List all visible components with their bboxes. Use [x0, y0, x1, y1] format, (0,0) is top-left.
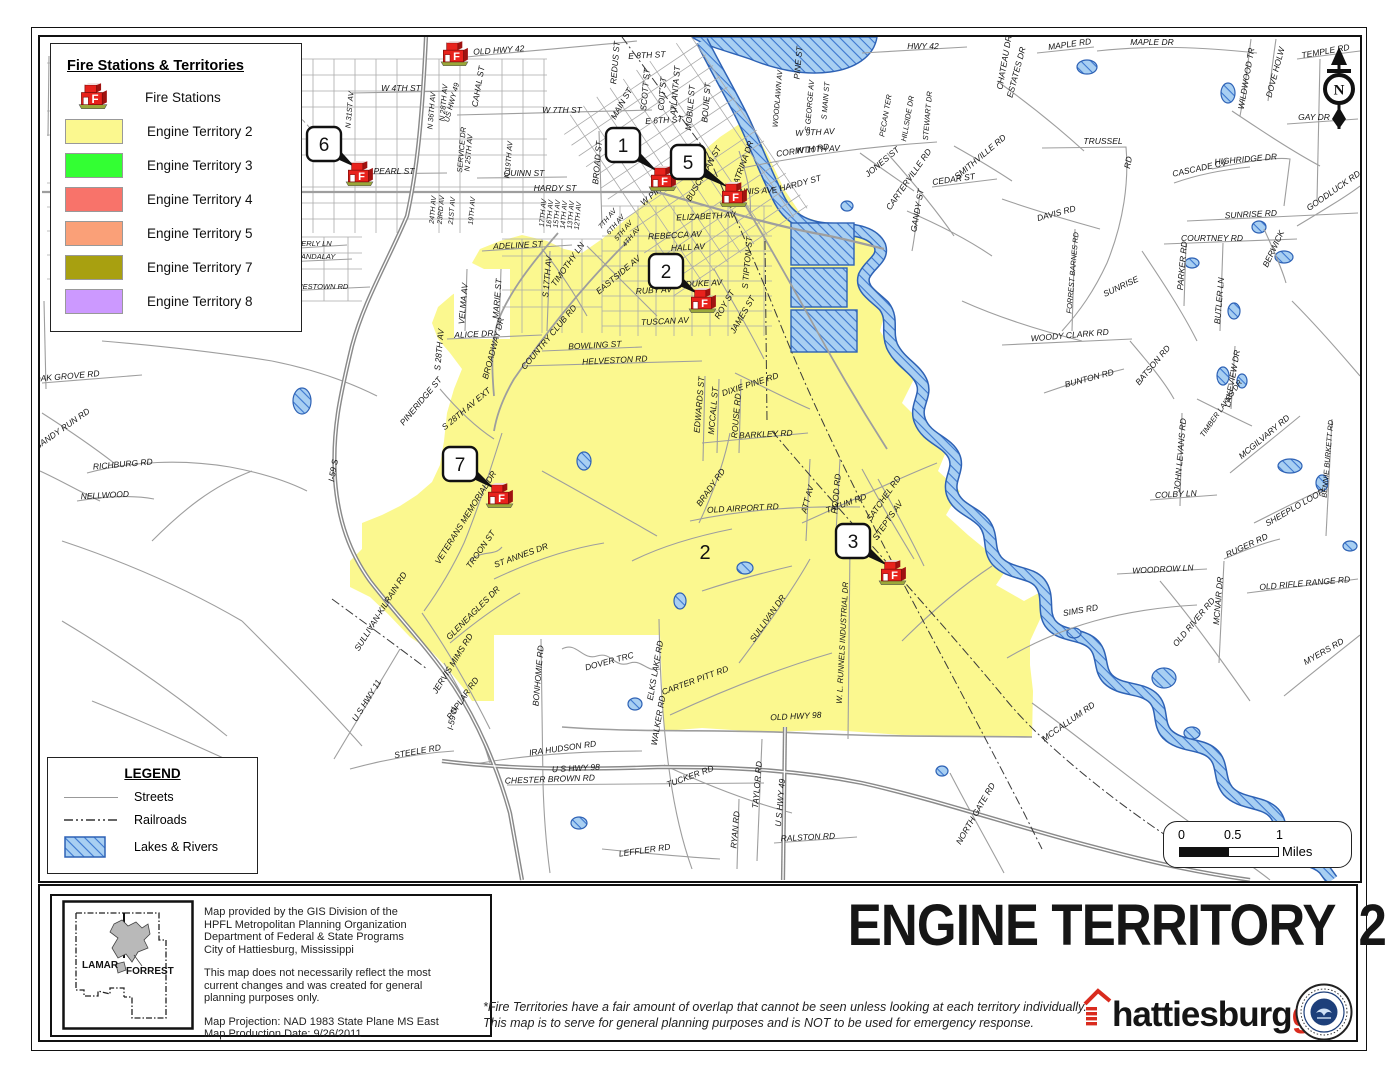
callout-box: 3	[836, 524, 870, 558]
street-label: BENNIE BURKETT RD	[1320, 419, 1336, 498]
station-number: 1	[618, 136, 629, 157]
station-number: 6	[319, 135, 330, 156]
street-label: W 7TH ST	[542, 105, 582, 115]
legend-fire-stations-territories: Fire Stations & Territories Fire Station…	[50, 43, 302, 332]
svg-text:LAMAR: LAMAR	[82, 960, 119, 971]
scale-bar: 0 0.5 1 Miles	[1163, 821, 1352, 868]
street-label: N 25TH AV	[462, 133, 474, 172]
street-label: SMITHVILLE RD	[952, 132, 1008, 181]
street-label: ATLANTA ST	[668, 65, 682, 117]
territory-label: Engine Territory 7	[147, 260, 253, 275]
legend-item-streets: Streets	[64, 790, 257, 804]
street-label: BOUIE ST	[699, 82, 712, 123]
territory-number-label: 2	[699, 542, 710, 564]
legend-item-territory-8: Engine Territory 8	[65, 288, 301, 314]
street-label: RD	[1122, 156, 1134, 170]
disclaimer-text: *Fire Territories have a fair amount of …	[483, 999, 1088, 1031]
street-line-symbol	[64, 797, 118, 798]
street-label: DOVE HOLW	[1264, 45, 1287, 98]
station-number: 5	[683, 153, 694, 174]
county-inset-map: LAMAR FORREST	[62, 900, 194, 1030]
svg-text:FORREST: FORREST	[126, 966, 174, 977]
street-label: HIGHRIDGE DR	[1214, 151, 1277, 166]
callout-box: 1	[606, 128, 640, 162]
callout-box: 6	[307, 127, 341, 161]
city-seal-icon	[1294, 982, 1354, 1042]
scale-tick-0: 0	[1178, 828, 1185, 842]
water-swatch	[64, 836, 106, 858]
callout-box: 7	[443, 447, 477, 481]
street-label: HILLSIDE DR	[899, 94, 916, 142]
callout-box: 2	[649, 254, 683, 288]
street-label: MCNAIR DR	[1211, 576, 1225, 625]
scale-tick-05: 0.5	[1224, 828, 1241, 842]
street-label: BUNTON RD	[1064, 367, 1115, 390]
street-label: CHESTER BROWN RD	[505, 772, 595, 785]
street-label: BUTLER LN	[1212, 276, 1226, 324]
street-label: GANDY ST	[908, 187, 926, 232]
street-label: WILDWOOD TR	[1236, 47, 1257, 110]
territory-label: Engine Territory 2	[147, 124, 253, 139]
street-label: 23RD AV	[437, 194, 447, 225]
street-label: LEFFLER RD	[618, 841, 671, 858]
street-label: OLD RIFLE RANGE RD	[1259, 574, 1351, 592]
legend-item-territory-4: Engine Territory 4	[65, 186, 301, 212]
street-label: TIMBER LAKES DR	[1198, 378, 1244, 439]
street-label: SUNRISE	[1101, 274, 1140, 299]
street-label: MAPLE DR	[1130, 37, 1173, 47]
territory-color-swatch	[65, 187, 123, 212]
street-label: REDUS ST	[608, 40, 622, 84]
street-label: PECAN TER	[877, 93, 893, 137]
street-label: GOODLUCK RD	[1304, 168, 1360, 212]
credits-box: LAMAR FORREST Map provided by the GIS Di…	[50, 894, 492, 1037]
credits-text: Map provided by the GIS Division of theH…	[204, 906, 479, 1041]
street-label: SANDY RUN RD	[40, 406, 92, 451]
street-label: HWY 42	[907, 41, 939, 51]
street-label: PEARL ST	[374, 166, 416, 176]
street-label: 12TH AV	[574, 200, 584, 230]
railroad-line-symbol	[64, 817, 118, 823]
territory-color-swatch	[65, 289, 123, 314]
page-title: ENGINE TERRITORY2	[612, 892, 1386, 954]
station-number: 7	[455, 455, 466, 476]
street-label: OAK GROVE RD	[40, 368, 100, 384]
legend-item-territory-5: Engine Territory 5	[65, 220, 301, 246]
legend-item-territory-7: Engine Territory 7	[65, 254, 301, 280]
map-footer: LAMAR FORREST Map provided by the GIS Di…	[38, 884, 1358, 1042]
street-label: BONHOMIE RD	[530, 645, 545, 707]
street-label: MCGILVARY RD	[1237, 413, 1292, 461]
scale-tick-1: 1	[1276, 828, 1283, 842]
street-label: JOHN LEVANS RD	[1172, 418, 1188, 493]
street-label: U S HWY 11	[350, 677, 384, 723]
legend-sub-title: LEGEND	[48, 766, 257, 781]
territory-color-swatch	[65, 153, 123, 178]
street-label: COIT ST	[656, 76, 669, 111]
legend-symbols: LEGEND Streets Railroads Lakes & Rivers	[47, 757, 258, 874]
territory-label: Engine Territory 5	[147, 226, 253, 241]
street-label: SHEEPLO LOOP	[1263, 486, 1326, 528]
street-label: WOODLAWN AV	[771, 69, 785, 128]
street-label: W 9TH AV	[795, 126, 836, 138]
station-number: 2	[661, 262, 672, 283]
street-label: S MAIN ST	[819, 80, 831, 120]
street-label: PINERIDGE ST	[398, 374, 445, 427]
scale-bar-graphic	[1179, 847, 1279, 857]
street-label: S 28TH AV	[432, 327, 446, 371]
territory-label: Engine Territory 4	[147, 192, 253, 207]
street-label: RALSTON RD	[780, 831, 835, 844]
street-label: E 8TH ST	[628, 49, 667, 61]
street-label: SIMS RD	[1062, 602, 1099, 618]
street-label: N 36TH AV	[425, 91, 437, 130]
street-label: 19TH AV	[468, 195, 478, 225]
street-label: SUNRISE RD	[1224, 208, 1277, 221]
territory-color-swatch	[65, 119, 123, 144]
street-label: S GEORGE AV	[803, 79, 817, 132]
street-label: WOODROW LN	[1132, 562, 1195, 575]
legend-title: Fire Stations & Territories	[67, 58, 301, 74]
territory-label: Engine Territory 8	[147, 294, 253, 309]
legend-item-lakes: Lakes & Rivers	[64, 836, 257, 858]
street-label: NORTH GATE RD	[954, 781, 997, 846]
street-label: OLD HWY 42	[473, 43, 525, 57]
legend-item-territory-2: Engine Territory 2	[65, 118, 301, 144]
street-label: GAY DR	[1298, 112, 1330, 122]
scale-unit: Miles	[1282, 844, 1312, 859]
callout-box: 5	[671, 145, 705, 179]
street-label: DOVER TRC	[584, 650, 636, 673]
street-label: BATSON RD	[1133, 343, 1172, 387]
street-label: RUGER RD	[1224, 531, 1269, 559]
street-label: I-59 N	[445, 705, 459, 730]
street-label: PINE ST	[792, 45, 805, 80]
legend-item-railroads: Railroads	[64, 813, 257, 827]
street-label: I-59 S	[326, 458, 340, 482]
station-number: 3	[848, 532, 859, 553]
svg-text:N: N	[1334, 83, 1345, 99]
territory-label: Engine Territory 3	[147, 158, 253, 173]
street-label: OLD RIVER RD	[1170, 596, 1217, 649]
street-label: RICHBURG RD	[92, 456, 153, 471]
street-label: W 4TH ST	[381, 83, 421, 93]
street-label: STEELE RD	[393, 742, 441, 760]
street-label: TRUSSEL	[1083, 136, 1122, 146]
street-label: N 31ST AV	[343, 90, 355, 128]
territory-color-swatch	[65, 255, 123, 280]
street-label: 21ST AV	[448, 196, 458, 226]
street-label: NELLWOOD	[80, 489, 129, 502]
street-label: MOBILE ST	[683, 84, 697, 131]
street-label: HALL AV	[671, 241, 707, 253]
street-label: SCOTT ST	[638, 68, 652, 112]
legend-item-fire-stations: Fire Stations	[65, 84, 301, 110]
street-label: JONES ST	[862, 144, 902, 180]
street-label: COURTNEY RD	[1181, 233, 1243, 243]
street-label: CAHAL ST	[470, 64, 487, 107]
street-label: MCCALLUM RD	[1040, 700, 1097, 744]
street-label: E HARDY ST	[770, 172, 822, 195]
street-label: FORREST BARNES RD	[1064, 231, 1080, 314]
fire-station-icon	[65, 82, 121, 112]
street-label: ALICE DR	[453, 328, 494, 340]
street-label: IRA HUDSON RD	[528, 738, 596, 757]
street-label: STEWART DR	[921, 90, 934, 140]
street-label: RYAN RD	[728, 811, 741, 849]
street-label: PARKER RD	[1175, 241, 1189, 291]
fire-station-marker	[441, 41, 468, 66]
territory-color-swatch	[65, 221, 123, 246]
street-label: HARDY ST	[534, 183, 578, 193]
legend-item-territory-3: Engine Territory 3	[65, 152, 301, 178]
logo-house-icon	[1082, 986, 1112, 1030]
